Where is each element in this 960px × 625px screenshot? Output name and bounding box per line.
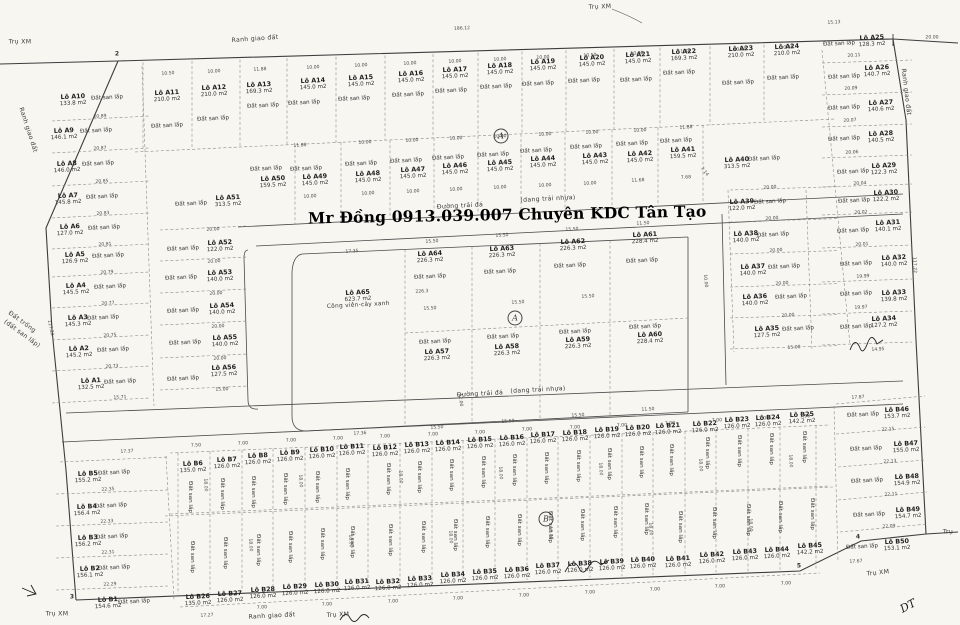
- lot-lô-b24-fill: Đất san lấp: [768, 433, 774, 465]
- dimension-label: 15.13: [827, 20, 840, 26]
- lot-lô-b12: Lô B12126.0 m2: [371, 444, 398, 458]
- section-marker-a: A: [494, 129, 509, 144]
- dimension-label: 11.68: [631, 178, 644, 184]
- dimension-label: 20.79: [100, 270, 113, 276]
- lot-lô-b14: Lô B14126.0 m2: [434, 439, 461, 453]
- dimension-label: 11.88: [253, 67, 266, 73]
- dimension-label: 18.00: [247, 538, 253, 551]
- lot-lô-b46: Lô B46153.7 m2: [883, 406, 910, 420]
- dimension-label: 20.89: [93, 114, 106, 120]
- dimension-label: 15.50: [571, 413, 584, 419]
- dimension-label: 14.95: [871, 347, 884, 353]
- lot-lô-a39: Lô A39122.0 m2: [728, 198, 755, 212]
- dimension-label: 19.97: [854, 305, 867, 311]
- dimension-label: 7.00: [333, 436, 343, 442]
- dimension-label: 15.50: [501, 419, 514, 425]
- dimension-label: 11.50: [641, 407, 654, 413]
- lot-lô-b26: Lô B26135.0 m2: [184, 593, 211, 607]
- lot-lô-a45: Lô A45145.0 m2: [486, 159, 513, 173]
- lot-lô-b8: Lô B8126.0 m2: [244, 452, 271, 466]
- map-label-13: Trụ XM: [326, 611, 349, 619]
- dimension-label: 20.00: [211, 324, 224, 330]
- lot-lô-b39: Lô B39126.0 m2: [598, 558, 625, 572]
- dimension-label: 22.09: [882, 524, 895, 530]
- dimension-label: 10.50: [733, 47, 746, 53]
- lot-lô-a14: Lô A14145.0 m2: [299, 77, 326, 91]
- dimension-label: 18.00: [397, 470, 403, 483]
- dimension-label: 18.00: [547, 526, 553, 539]
- lot-lô-b9-fill: Đất san lấp: [282, 473, 288, 505]
- lot-lô-a37: Lô A37140.0 m2: [739, 263, 766, 277]
- lot-lô-a63: Lô A63226.3 m2: [488, 245, 515, 259]
- dimension-label: 7.00: [650, 587, 660, 593]
- dimension-label: 10.00: [449, 136, 462, 142]
- dimension-label: 20.11: [847, 53, 860, 59]
- lot-lô-a55: Lô A55140.0 m2: [211, 334, 238, 348]
- dimension-label: 15.50: [495, 233, 508, 239]
- dimension-label: 17.87: [851, 395, 864, 401]
- dimension-label: 20.73: [105, 364, 118, 370]
- lot-lô-b10: Lô B10126.0 m2: [308, 446, 335, 460]
- dimension-label: 20.00: [763, 185, 776, 191]
- map-linework: [0, 0, 960, 625]
- lot-lô-b33-fill: Đất san lấp: [420, 521, 426, 553]
- dimension-label: 7.90: [800, 414, 810, 420]
- lot-lô-a9: Lô A9146.1 m2: [50, 127, 77, 141]
- dimension-label: 15.50: [581, 294, 594, 300]
- dimension-label: 15.00: [215, 387, 228, 393]
- dimension-label: 18.00: [697, 458, 703, 471]
- dimension-label: 10.00: [361, 191, 374, 197]
- lot-lô-a6: Lô A6127.0 m2: [56, 223, 83, 237]
- dimension-label: 22.31: [101, 550, 114, 556]
- lot-lô-b18: Lô B18126.0 m2: [561, 429, 588, 443]
- dimension-label: 7.00: [519, 593, 529, 599]
- dimension-label: 7.00: [665, 421, 675, 427]
- lot-lô-a48: Lô A48145.0 m2: [354, 170, 381, 184]
- dimension-label: 15.00: [787, 345, 800, 351]
- lot-lô-b45-fill: Đất san lấp: [809, 498, 815, 530]
- dimension-label: 7.00: [522, 427, 532, 433]
- lot-lô-b27-fill: Đất san lấp: [222, 537, 228, 569]
- lot-lô-b28: Lô B28126.0 m2: [249, 586, 276, 600]
- lot-lô-b33: Lô B33126.0 m2: [406, 575, 433, 589]
- lot-lô-a11: Lô A11210.0 m2: [153, 89, 180, 103]
- lot-lô-a4: Lô A4145.5 m2: [62, 282, 89, 296]
- lot-lô-a46: Lô A46145.0 m2: [441, 162, 468, 176]
- dimension-label: 15.50: [423, 306, 436, 312]
- lot-lô-a51: Lô A51313.5 m2: [214, 194, 241, 208]
- dimension-label: 20.00: [769, 248, 782, 254]
- lot-lô-a29: Lô A29122.3 m2: [870, 162, 897, 176]
- dimension-label: 7.00: [585, 590, 595, 596]
- lot-lô-b11: Lô B11126.0 m2: [338, 443, 365, 457]
- lot-lô-b50: Lô B50153.1 m2: [883, 538, 910, 552]
- dimension-label: 7.00: [238, 441, 248, 447]
- dimension-label: 17.35: [345, 249, 358, 255]
- lot-lô-b34-fill: Đất san lấp: [452, 519, 458, 551]
- lot-lô-b39-fill: Đất san lấp: [612, 506, 618, 538]
- dimension-label: 20.00: [206, 227, 219, 233]
- dimension-label: 10.00: [207, 69, 220, 75]
- dimension-label: 20.04: [853, 181, 866, 187]
- dimension-label: 10.00: [493, 57, 506, 63]
- boundary-point-4: 4: [856, 534, 860, 541]
- dimension-label: 17.27: [200, 613, 213, 619]
- lot-lô-a12: Lô A12210.0 m2: [200, 84, 227, 98]
- lot-lô-a32: Lô A32140.0 m2: [880, 254, 907, 268]
- dimension-label: 17.37: [120, 449, 133, 455]
- dimension-label: 20.00: [209, 291, 222, 297]
- lot-lô-a35: Lô A35127.5 m2: [753, 325, 780, 339]
- lot-lô-b13-fill: Đất san lấp: [416, 461, 422, 493]
- lot-lô-b41-fill: Đất san lấp: [677, 511, 683, 543]
- boundary-point-5: 5: [797, 563, 801, 570]
- dimension-label: 22.13: [883, 459, 896, 465]
- lot-lô-a31: Lô A31140.1 m2: [874, 219, 901, 233]
- lot-lô-b11-fill: Đất san lấp: [344, 468, 350, 500]
- dimension-label: 10.00: [538, 132, 551, 138]
- map-label-12: Trụ XM: [46, 611, 69, 618]
- dimension-label: 7.00: [781, 581, 791, 587]
- section-marker-a: A: [508, 311, 523, 326]
- lot-lô-b8-fill: Đất san lấp: [250, 476, 256, 508]
- lot-lô-a28: Lô A28140.5 m2: [867, 130, 894, 144]
- lot-lô-b31: Lô B31126.0 m2: [343, 578, 370, 592]
- dimension-label: 20.00: [925, 36, 938, 41]
- lot-lô-b44: Lô B44126.0 m2: [763, 546, 790, 560]
- dimension-label: 20.00: [781, 313, 794, 319]
- lot-lô-a33: Lô A33139.8 m2: [880, 289, 907, 303]
- lot-lô-b17: Lô B17126.0 m2: [529, 431, 556, 445]
- lot-lô-a50: Lô A50159.5 m2: [259, 175, 286, 189]
- dimension-label: 19.99: [856, 274, 869, 280]
- lot-lô-a38: Lô A38140.0 m2: [732, 230, 759, 244]
- dimension-label: 11.50: [636, 221, 649, 227]
- lot-lô-b36-fill: Đất san lấp: [516, 514, 522, 546]
- dimension-label: 18.00: [447, 530, 453, 543]
- dimension-label: 7.00: [570, 425, 580, 431]
- dimension-label: 20.09: [844, 86, 857, 92]
- lot-lô-b20-fill: Đất san lấp: [638, 446, 644, 478]
- dimension-label: 7.50: [191, 443, 201, 449]
- lot-lô-a52: Lô A52122.0 m2: [206, 239, 233, 253]
- lot-lô-b15-fill: Đất san lấp: [480, 456, 486, 488]
- lot-lô-b49: Lô B49154.7 m2: [894, 506, 921, 520]
- lot-lô-b26-fill: Đất san lấp: [189, 541, 195, 573]
- dimension-label: 11.88: [677, 49, 690, 55]
- lot-lô-b16: Lô B16126.0 m2: [498, 434, 525, 448]
- lot-lô-a1: Lô A1132.5 m2: [77, 377, 104, 391]
- lot-lô-a49: Lô A49145.0 m2: [301, 173, 328, 187]
- dimension-label: 22.11: [884, 492, 897, 498]
- lot-lô-a26: Lô A26140.7 m2: [863, 64, 890, 78]
- lot-lô-b35: Lô B35126.0 m2: [471, 568, 498, 582]
- lot-lô-b22-fill: Đất san lấp: [704, 437, 710, 469]
- dimension-label: 22.35: [101, 487, 114, 493]
- lot-lô-b15: Lô B15126.0 m2: [466, 436, 493, 450]
- lot-lô-b36: Lô B36126.0 m2: [503, 566, 530, 580]
- dimension-label: 20.87: [93, 146, 106, 152]
- dimension-label: 10.00: [585, 130, 598, 136]
- dimension-label: 7.00: [715, 584, 725, 590]
- dimension-label: 20.00: [765, 216, 778, 222]
- dimension-label: 10.50: [780, 45, 793, 51]
- lot-lô-a65: Lô A65623.7 m2Công viên-cây xanh: [326, 288, 390, 310]
- lot-lô-b37: Lô B37126.0 m2: [534, 562, 561, 576]
- lot-lô-a10: Lô A10133.8 m2: [59, 93, 86, 107]
- dimension-label: 10.00: [405, 138, 418, 144]
- lot-lô-a61: Lô A61228.4 m2: [631, 231, 658, 245]
- dimension-label: 10.00: [303, 194, 316, 200]
- lot-lô-a16: Lô A16145.0 m2: [397, 70, 424, 84]
- dimension-label: 7.00: [257, 605, 267, 611]
- dimension-label: 11.88: [679, 125, 692, 131]
- lot-lô-b27: Lô B27126.0 m2: [216, 590, 243, 604]
- dimension-label: 10.00: [583, 181, 596, 187]
- dimension-label: 7.00: [428, 432, 438, 438]
- dimension-label: 10.00: [536, 55, 549, 61]
- dimension-label: 20.07: [843, 118, 856, 124]
- dimension-label: 10.00: [630, 51, 643, 57]
- dimension-label: 20.81: [98, 242, 111, 248]
- dimension-label: 18.00: [747, 518, 753, 531]
- dimension-label: 117.22: [911, 257, 917, 273]
- dimension-label: 20.06: [845, 150, 858, 156]
- lot-lô-a36: Lô A36140.0 m2: [741, 293, 768, 307]
- lot-lô-a47: Lô A47145.0 m2: [399, 166, 426, 180]
- dimension-label: 20.77: [101, 301, 114, 307]
- lot-lô-b9: Lô B9126.0 m2: [276, 449, 303, 463]
- lot-lô-b16-fill: Đất san lấp: [511, 454, 517, 486]
- lot-lô-b35-fill: Đất san lấp: [484, 516, 490, 548]
- lot-lô-b20: Lô B20126.0 m2: [624, 424, 651, 438]
- lot-lô-b14-fill: Đất san lấp: [448, 459, 454, 491]
- dimension-label: 18.00: [202, 478, 208, 491]
- lot-lô-a60: Lô A60228.4 m2: [636, 331, 663, 345]
- lot-lô-a15: Lô A15145.0 m2: [347, 74, 374, 88]
- lot-lô-b38: Lô B38126.0 m2: [566, 560, 593, 574]
- lot-lô-a58: Lô A58226.3 m2: [493, 343, 520, 357]
- dimension-label: 18.00: [297, 474, 303, 487]
- dimension-label: 12.00: [457, 393, 463, 407]
- dimension-label: 10.00: [306, 65, 319, 71]
- lot-lô-a34: Lô A34127.2 m2: [870, 315, 897, 329]
- lot-lô-b30: Lô B30126.0 m2: [313, 581, 340, 595]
- map-label-2: Trụ XM: [589, 3, 612, 11]
- dimension-label: 226.3: [415, 289, 428, 295]
- boundary-point-3: 3: [70, 594, 74, 601]
- dimension-label: 15.50: [425, 239, 438, 245]
- dimension-label: 10.00: [448, 59, 461, 65]
- dimension-label: 7.00: [453, 596, 463, 602]
- dimension-label: 22.33: [100, 519, 113, 525]
- lot-lô-a64: Lô A64226.3 m2: [416, 250, 443, 264]
- lot-lô-a41: Lô A41159.5 m2: [669, 146, 696, 160]
- dimension-label: 7.00: [475, 430, 485, 436]
- dimension-label: 186.12: [454, 26, 470, 32]
- dimension-label: 20.00: [207, 259, 220, 265]
- dimension-label: 11.88: [293, 143, 306, 149]
- dimension-label: 18.00: [347, 534, 353, 547]
- lot-lô-b19-fill: Đất san lấp: [606, 448, 612, 480]
- lot-lô-a7: Lô A7145.8 m2: [54, 192, 81, 206]
- lot-lô-a59: Lô A59226.3 m2: [564, 336, 591, 350]
- dimension-label: 18.00: [647, 522, 653, 535]
- dimension-label: 17.67: [849, 559, 862, 565]
- lot-lô-b18-fill: Đất san lấp: [575, 450, 581, 482]
- lot-lô-b45: Lô B45142.2 m2: [796, 542, 823, 556]
- lot-lô-b10-fill: Đất san lấp: [314, 471, 320, 503]
- dimension-label: 7.00: [380, 434, 390, 440]
- dimension-label: 10.50: [161, 71, 174, 77]
- lot-lô-a18: Lô A18145.0 m2: [486, 62, 513, 76]
- dimension-label: 10.00: [538, 183, 551, 189]
- lot-lô-b29-fill: Đất san lấp: [287, 531, 293, 563]
- dimension-label: 10.00: [358, 140, 371, 146]
- lot-lô-b34: Lô B34126.0 m2: [439, 571, 466, 585]
- lot-lô-b42-fill: Đất san lấp: [711, 507, 717, 539]
- dimension-label: 18.00: [597, 462, 603, 475]
- lot-lô-b41: Lô B41126.0 m2: [664, 555, 691, 569]
- lot-lô-b7: Lô B7126.0 m2: [213, 456, 240, 470]
- lot-lô-a44: Lô A44145.0 m2: [529, 155, 556, 169]
- dimension-label: 10.00: [449, 187, 462, 193]
- lot-lô-b38-fill: Đất san lấp: [579, 509, 585, 541]
- dimension-label: 7.00: [322, 602, 332, 608]
- dimension-label: 20.75: [103, 333, 116, 339]
- lot-lô-a30: Lô A30122.2 m2: [872, 189, 899, 203]
- dimension-label: 7.00: [712, 418, 722, 424]
- lot-lô-a40: Lô A40313.5 m2: [723, 156, 750, 170]
- lot-lô-a27: Lô A27140.6 m2: [867, 99, 894, 113]
- lot-lô-b6-fill: Đất san lấp: [187, 481, 193, 513]
- lot-lô-b43: Lô B43126.0 m2: [731, 548, 758, 562]
- map-label-15: Trụ: [943, 529, 953, 536]
- lot-lô-a13: Lô A13169.3 m2: [245, 81, 272, 95]
- lot-lô-b44-fill: Đất san lấp: [777, 501, 783, 533]
- lot-lô-a5: Lô A5126.9 m2: [61, 251, 88, 265]
- dimension-label: 18.00: [497, 466, 503, 479]
- dimension-label: 17.36: [353, 431, 366, 437]
- lot-lô-b47: Lô B47155.0 m2: [892, 440, 919, 454]
- lot-lô-a17: Lô A17145.0 m2: [441, 66, 468, 80]
- dimension-label: 22.29: [103, 582, 116, 588]
- lot-lô-b25-fill: Đất san lấp: [801, 431, 807, 463]
- lot-lô-b32-fill: Đất san lấp: [387, 524, 393, 556]
- dimension-label: 10.50: [583, 53, 596, 59]
- lot-lô-a62: Lô A62226.3 m2: [559, 238, 586, 252]
- lot-lô-b42: Lô B42126.0 m2: [698, 551, 725, 565]
- dimension-label: 20.00: [775, 281, 788, 287]
- dimension-label: 22.15: [881, 427, 894, 433]
- lot-lô-b32: Lô B32126.0 m2: [374, 578, 401, 592]
- lot-lô-b21-fill: Đất san lấp: [668, 444, 674, 476]
- dimension-label: 7.00: [388, 599, 398, 605]
- dimension-label: 10.00: [633, 128, 646, 134]
- dimension-label: 15.50: [565, 227, 578, 233]
- lot-lô-b40: Lô B40126.0 m2: [629, 556, 656, 570]
- dimension-label: 7.68: [681, 175, 691, 181]
- map-label-0: Trụ XM: [9, 39, 32, 46]
- dimension-label: 18.00: [787, 454, 793, 467]
- lot-lô-b6: Lô B6135.0 m2: [179, 460, 206, 474]
- lot-lô-b17-fill: Đất san lấp: [543, 452, 549, 484]
- dimension-label: 20.00: [213, 356, 226, 362]
- dimension-label: 20.01: [855, 242, 868, 248]
- dimension-label: 20.83: [96, 211, 109, 217]
- lot-lô-a57: Lô A57226.3 m2: [423, 348, 450, 362]
- lot-lô-a54: Lô A54140.0 m2: [208, 302, 235, 316]
- dimension-label: 10.00: [403, 61, 416, 67]
- dimension-label: 10.00: [406, 189, 419, 195]
- cadastral-map-canvas: Mr Đồng 0913.039.007 Chuyên KDC Tân Tạo …: [0, 0, 960, 625]
- lot-lô-b48: Lô B48154.9 m2: [893, 473, 920, 487]
- lot-lô-b23-fill: Đất san lấp: [736, 435, 742, 467]
- lot-lô-b12-fill: Đất san lấp: [385, 463, 391, 495]
- lot-lô-a43: Lô A43145.0 m2: [581, 152, 608, 166]
- section-marker-b: B: [539, 512, 554, 527]
- dimension-label: 20.85: [95, 179, 108, 185]
- dimension-label: 10.00: [702, 274, 708, 288]
- dimension-label: 15.50: [430, 425, 443, 431]
- lot-lô-b29: Lô B29126.0 m2: [281, 583, 308, 597]
- dimension-label: 10.00: [493, 185, 506, 191]
- lot-lô-b23: Lô B23126.0 m2: [723, 416, 750, 430]
- dimension-label: 7.00: [759, 416, 769, 422]
- boundary-point-2: 2: [115, 51, 119, 58]
- lot-lô-b13: Lô B13126.0 m2: [403, 441, 430, 455]
- dimension-label: 15.71: [113, 395, 126, 401]
- lot-lô-b28-fill: Đất san lấp: [255, 534, 261, 566]
- lot-lô-a56: Lô A56127.5 m2: [210, 364, 237, 378]
- dimension-label: 7.00: [617, 423, 627, 429]
- dimension-label: 15.50: [511, 300, 524, 306]
- dimension-label: 7.00: [286, 438, 296, 444]
- lot-lô-a42: Lô A42145.0 m2: [626, 150, 653, 164]
- lot-lô-b7-fill: Đất san lấp: [219, 478, 225, 510]
- lot-lô-a8: Lô A8146.0 m2: [53, 160, 80, 174]
- lot-lô-b30-fill: Đất san lấp: [319, 528, 325, 560]
- lot-lô-a53: Lô A53140.0 m2: [206, 269, 233, 283]
- dimension-label: 20.02: [854, 210, 867, 216]
- lot-lô-a25: Lô A25128.3 m2: [858, 34, 885, 48]
- lot-lô-a2: Lô A2145.2 m2: [65, 345, 92, 359]
- dimension-label: 10.00: [354, 63, 367, 69]
